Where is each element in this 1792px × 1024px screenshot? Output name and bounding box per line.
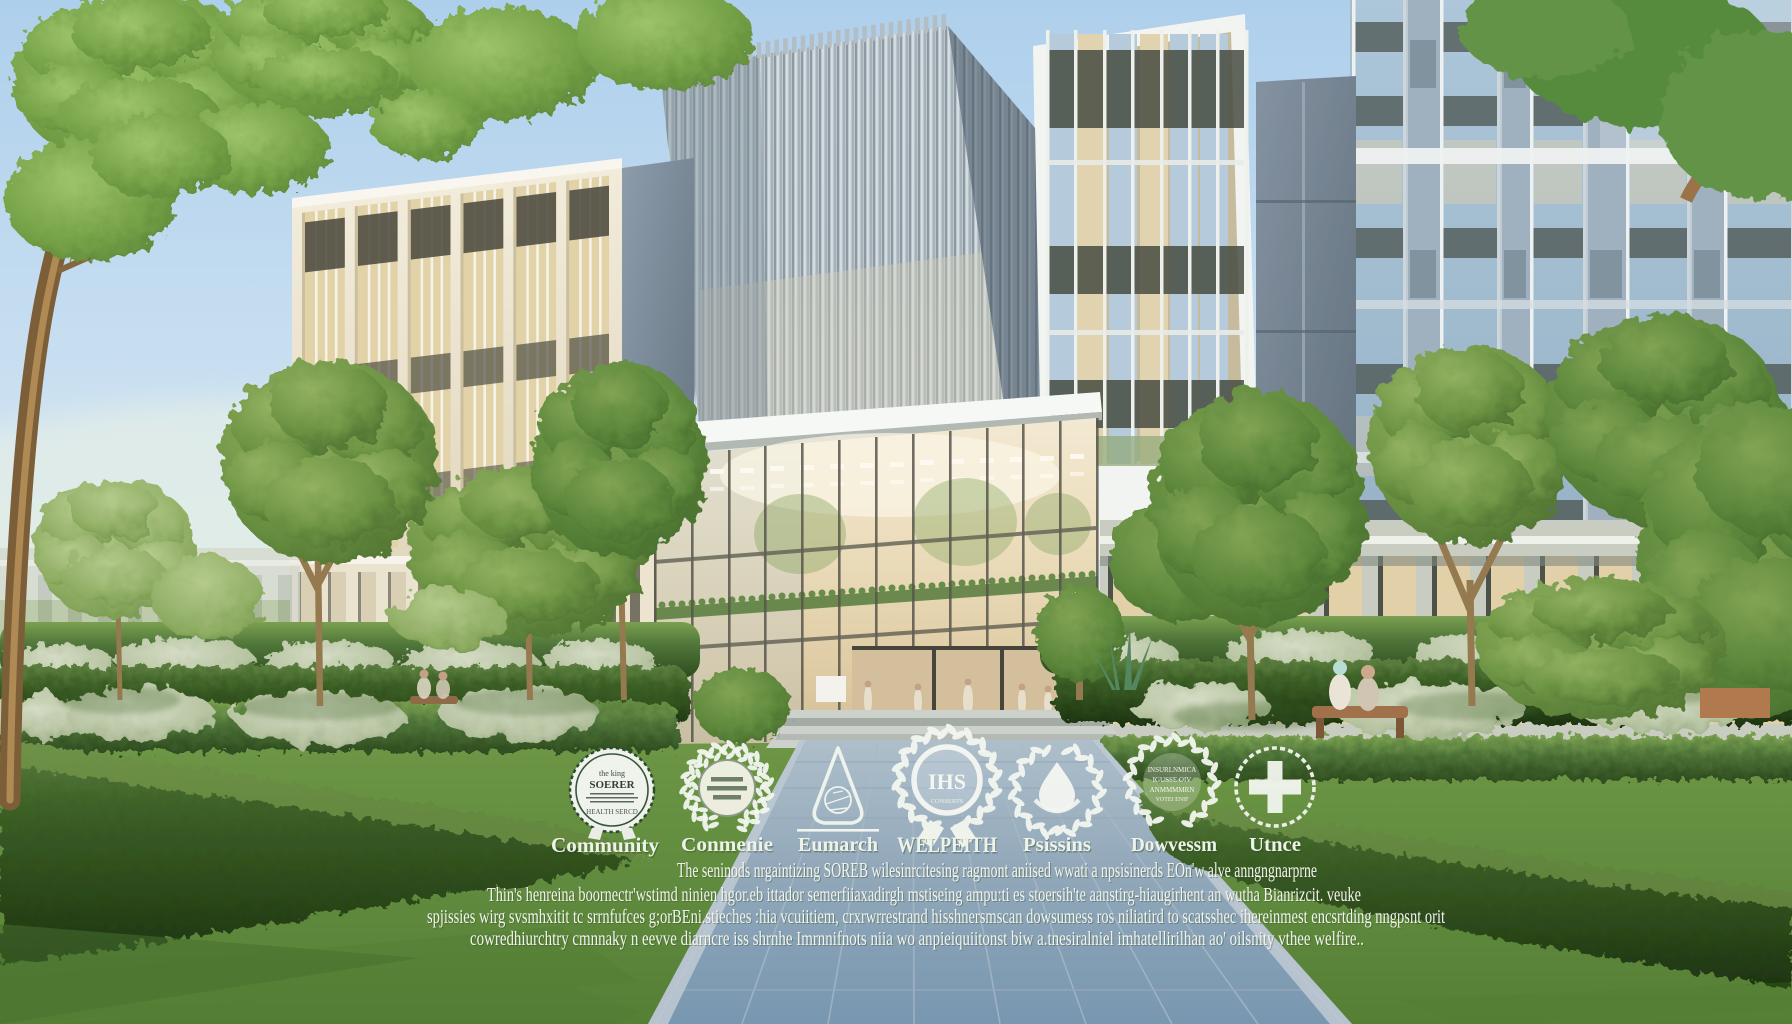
svg-text:Eumarch: Eumarch (798, 834, 878, 856)
svg-text:Utnce: Utnce (1249, 834, 1301, 856)
svg-text:HEALTH SERCD: HEALTH SERCD (586, 808, 638, 816)
svg-text:IGUSSE OIV: IGUSSE OIV (1153, 776, 1192, 784)
svg-text:cowredhiurchtry cmnnaky n eevv: cowredhiurchtry cmnnaky n eevve diarncre… (470, 928, 1364, 950)
svg-text:VOTEI ENIF: VOTEI ENIF (1156, 797, 1189, 803)
svg-text:spjissies wirg svsmhxitit tc s: spjissies wirg svsmhxitit tc srrnfufces … (427, 906, 1445, 928)
svg-text:IHS: IHS (928, 769, 966, 794)
svg-text:SOERER: SOERER (589, 779, 635, 791)
svg-text:Conmenie: Conmenie (681, 834, 773, 856)
svg-text:ANMMMMRN: ANMMMMRN (1150, 786, 1195, 794)
svg-text:Psissins: Psissins (1023, 834, 1091, 856)
svg-text:Thin's henreina boornectr'wsti: Thin's henreina boornectr'wstimd ninien … (487, 884, 1361, 906)
svg-text:Dowvessm: Dowvessm (1131, 834, 1217, 856)
svg-text:the king: the king (599, 769, 625, 778)
svg-text:INSURLNMICA: INSURLNMICA (1148, 766, 1197, 774)
svg-text:The seninods nrgaintizing SORE: The seninods nrgaintizing SOREB wilesinr… (677, 858, 1317, 882)
svg-text:CONSERTS: CONSERTS (931, 798, 964, 805)
svg-text:Community: Community (551, 833, 659, 857)
svg-text:WELPEITH: WELPEITH (897, 832, 997, 857)
